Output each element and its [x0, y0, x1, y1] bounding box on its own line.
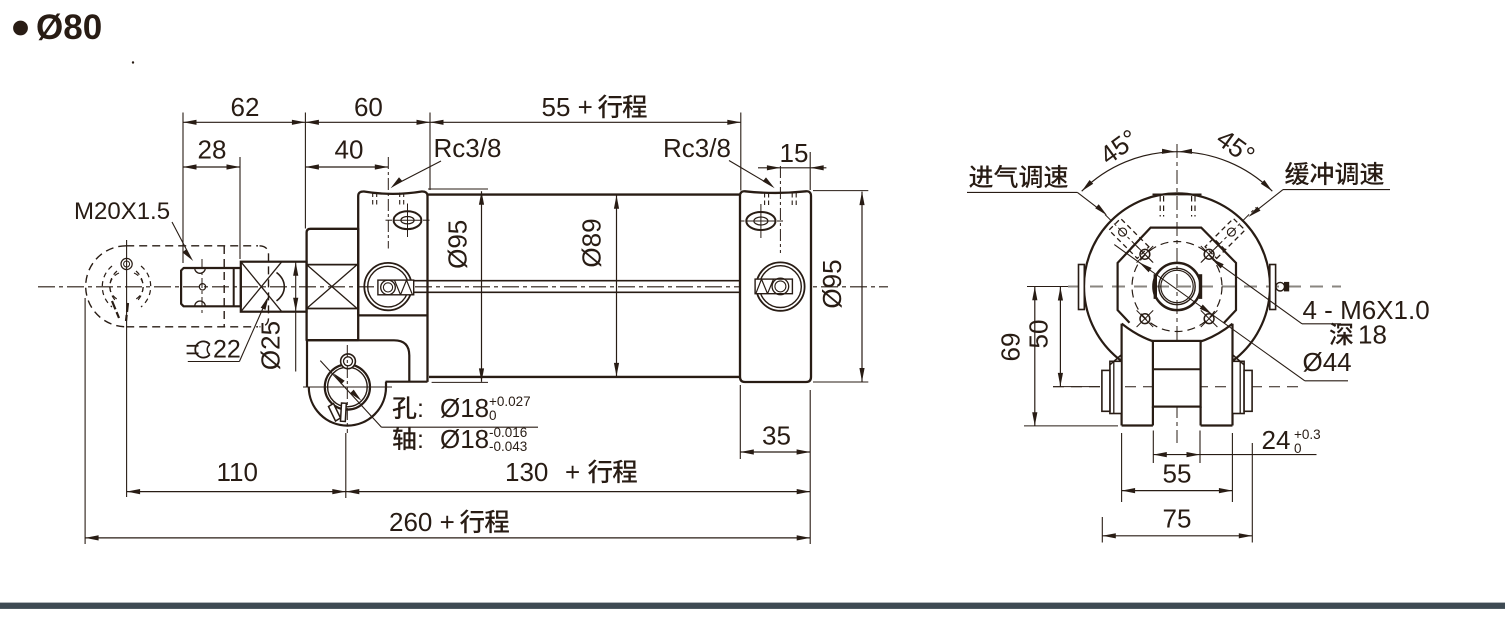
svg-text:22: 22 — [213, 336, 241, 364]
svg-text:75: 75 — [1163, 504, 1192, 534]
svg-text:50: 50 — [1024, 320, 1054, 349]
svg-text:+0.3: +0.3 — [1294, 427, 1321, 442]
svg-text:+: + — [565, 457, 580, 487]
svg-text:Ø18: Ø18 — [440, 424, 489, 454]
svg-text:60: 60 — [354, 92, 383, 122]
svg-text:0: 0 — [489, 408, 497, 423]
svg-text:Rc3/8: Rc3/8 — [663, 133, 731, 163]
svg-text:28: 28 — [198, 135, 227, 165]
svg-text:45°: 45° — [1211, 123, 1260, 170]
svg-text:+0.027: +0.027 — [489, 394, 531, 409]
svg-text:0: 0 — [1294, 441, 1302, 456]
svg-text:35: 35 — [762, 421, 791, 451]
svg-text:260 +: 260 + — [389, 507, 455, 537]
svg-text:M20X1.5: M20X1.5 — [74, 198, 170, 225]
svg-text:-0.016: -0.016 — [489, 425, 527, 440]
svg-text:18: 18 — [1358, 320, 1387, 350]
svg-text:Ø18: Ø18 — [440, 393, 489, 423]
svg-text:Ø95: Ø95 — [443, 220, 473, 269]
svg-text:Rc3/8: Rc3/8 — [434, 133, 502, 163]
svg-text:110: 110 — [216, 457, 257, 487]
svg-text:-0.043: -0.043 — [489, 439, 527, 454]
svg-text:62: 62 — [231, 92, 260, 122]
svg-text:55: 55 — [1163, 459, 1192, 489]
svg-text:40: 40 — [335, 135, 364, 165]
svg-text:Ø80: Ø80 — [36, 8, 102, 47]
svg-text:Ø25: Ø25 — [256, 321, 286, 370]
svg-text::: : — [417, 395, 424, 423]
svg-text:24: 24 — [1262, 425, 1291, 455]
svg-text::: : — [417, 426, 424, 454]
svg-text:Ø89: Ø89 — [576, 218, 606, 267]
svg-text:Ø95: Ø95 — [817, 259, 847, 308]
svg-text:Ø44: Ø44 — [1303, 347, 1352, 377]
svg-text:15: 15 — [780, 138, 809, 168]
svg-text:130: 130 — [505, 457, 548, 487]
svg-text:69: 69 — [996, 333, 1026, 362]
svg-text:45°: 45° — [1094, 123, 1143, 170]
svg-text:55 +: 55 + — [542, 92, 593, 122]
